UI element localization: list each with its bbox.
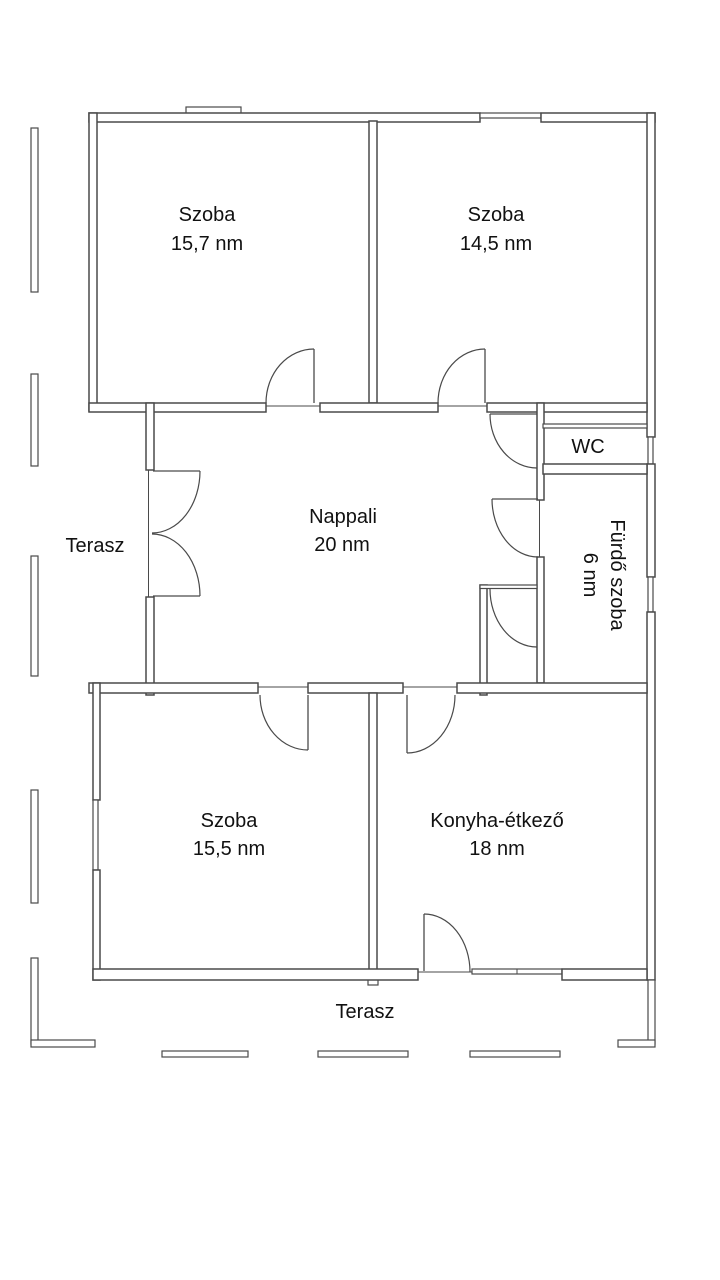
bathroom-area: 6 nm — [579, 553, 601, 597]
terrace-left-label: Terasz — [66, 535, 125, 557]
door-arc-hall — [490, 414, 537, 468]
wall-band-b1 — [89, 683, 258, 693]
wall-left-lower-2 — [93, 870, 100, 980]
bathroom-label-group: Fürdő szoba 6 nm — [579, 519, 628, 631]
wall-left-upper — [89, 113, 97, 411]
window-left-lower — [93, 800, 98, 870]
room1-name: Szoba — [179, 204, 237, 226]
wall-wc-left-lower — [537, 557, 544, 683]
terrace-bottom-label: Terasz — [336, 1001, 395, 1023]
terrace-corner-right-h — [618, 1040, 655, 1047]
door-arc-kitchen — [407, 695, 455, 753]
terrace-corner-right-v — [648, 980, 655, 1044]
floor-plan-drawing: Szoba 15,7 nm Szoba 14,5 nm Nappali 20 n… — [0, 0, 720, 1280]
window-right-bath — [648, 577, 653, 612]
kitchen-name: Konyha-étkező — [430, 810, 563, 832]
terrace-dash-3 — [470, 1051, 560, 1057]
living-room-area: 20 nm — [314, 534, 370, 556]
room2-area: 14,5 nm — [460, 233, 532, 255]
wall-left-lower-1 — [93, 683, 100, 800]
wall-divider-bottom-rooms — [369, 693, 377, 972]
terrace-edge-left-2 — [31, 374, 38, 466]
wall-wc-left-upper — [537, 403, 544, 500]
wc-name: WC — [571, 436, 604, 458]
terrace-edges — [31, 128, 655, 1057]
wall-right-1 — [647, 113, 655, 437]
bathroom-name: Fürdő szoba — [606, 519, 628, 631]
wall-right-2 — [647, 464, 655, 577]
window-right-wc — [648, 437, 653, 464]
wall-band-a2 — [320, 403, 438, 412]
wall-wc-bath-divider — [543, 464, 647, 474]
wall-top-left-seg — [89, 113, 480, 122]
wall-band-a1 — [89, 403, 266, 412]
wall-right-3 — [647, 612, 655, 980]
terrace-corner-left-v — [31, 958, 38, 1044]
wall-bottom-1 — [93, 969, 418, 980]
window-top-right — [480, 113, 541, 118]
room3-area: 15,5 nm — [193, 838, 265, 860]
terrace-dash-2 — [318, 1051, 408, 1057]
wall-nappali-left-lower — [146, 597, 154, 695]
kitchen-area: 18 nm — [469, 838, 525, 860]
wall-alcove-left — [480, 585, 487, 695]
wall-wc-top — [543, 424, 647, 428]
terrace-corner-left-h — [31, 1040, 95, 1047]
room1-area: 15,7 nm — [171, 233, 243, 255]
wall-alcove-top — [480, 585, 537, 589]
door-arc-exterior — [424, 914, 470, 972]
door-arc-room3 — [260, 695, 308, 750]
door-arc-room1 — [266, 349, 314, 403]
wall-band-b2 — [308, 683, 403, 693]
terrace-edge-left-1 — [31, 128, 38, 292]
terrace-edge-left-4 — [31, 790, 38, 903]
floor-plan: Szoba 15,7 nm Szoba 14,5 nm Nappali 20 n… — [0, 0, 720, 1280]
wall-band-a3 — [487, 403, 647, 412]
door-arc-room2 — [438, 349, 485, 403]
door-arc-bathroom — [492, 499, 538, 557]
terrace-dash-1 — [162, 1051, 248, 1057]
wall-top-right-seg — [541, 113, 655, 122]
room3-name: Szoba — [201, 810, 259, 832]
room2-name: Szoba — [468, 204, 526, 226]
wall-nappali-left-upper — [146, 403, 154, 470]
door-arc-alcove — [490, 589, 537, 647]
wall-bottom-2 — [562, 969, 647, 980]
wall-divider-top-rooms — [369, 121, 377, 403]
door-arc-french-lower — [152, 534, 200, 596]
wall-band-b3 — [457, 683, 647, 693]
terrace-edge-left-3 — [31, 556, 38, 676]
living-room-name: Nappali — [309, 506, 377, 528]
door-arc-french-upper — [152, 471, 200, 533]
